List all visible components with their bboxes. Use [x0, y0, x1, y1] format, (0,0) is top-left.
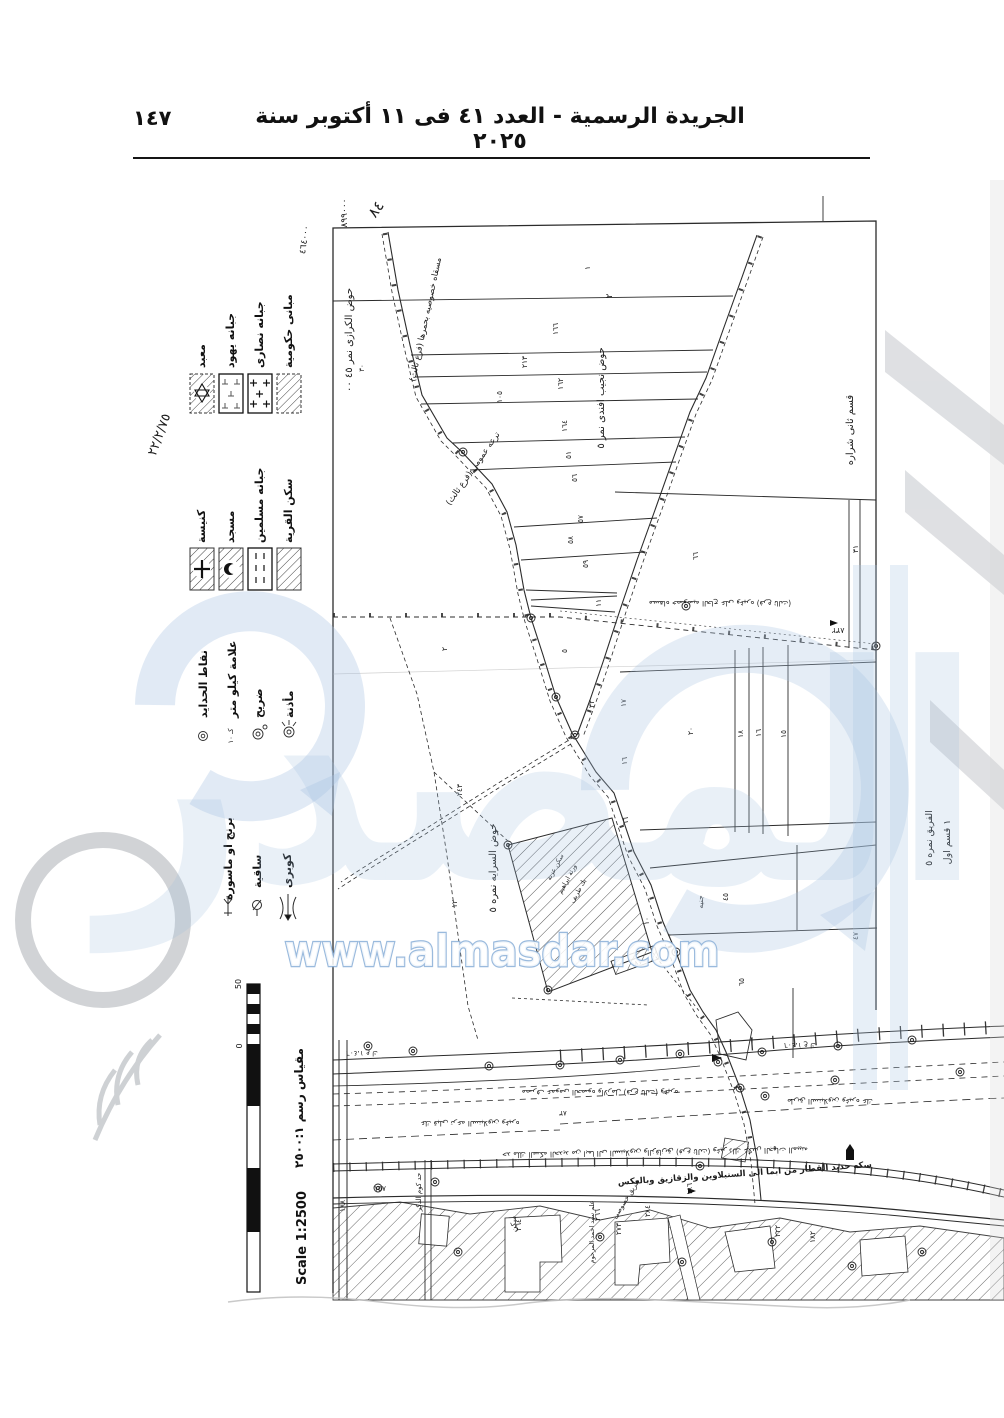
map-annotation: حد ملك السكه الحديد من ابما الى السنبلاو… [502, 1145, 808, 1159]
map-annotation: ٢٦٤ [514, 1219, 523, 1231]
map-annotation: حوض الكرازى نمر ٤٥ ٠٠ [344, 288, 355, 392]
map-annotation: مصرف عمومى الحصوه والارمل (فرع ثالث) وغي… [522, 1088, 678, 1097]
map-annotation: ٥٦ [570, 474, 579, 482]
legend-label: مسجد [224, 511, 237, 543]
legend-symbol-village-housing [277, 548, 301, 590]
legend-symbol-temple [190, 374, 214, 413]
cadastral-map: مبانى حكومية جبانه نصارى جبانه يهود معبد… [0, 0, 1004, 1418]
map-annotation: ١ [583, 266, 592, 270]
map-annotation: ٢٢/٢/٧٥ [145, 412, 174, 458]
map-annotation: ١٨٦ [685, 1183, 694, 1195]
map-annotation: ٦٥ [737, 978, 746, 986]
map-annotation: ٣٠ [358, 364, 366, 372]
map-annotation: حوض نجيب افندى نمر ٥ [596, 347, 607, 448]
map-annotation: عك قبلى ترعه السنبلاوين وغيره [421, 1119, 520, 1128]
map-annotation: ١،٤٠٦ ع ك [784, 1041, 816, 1049]
watermark-url-text: www.almasdar.com [285, 926, 720, 977]
map-annotation: ١،٤٠٦ ع ك [346, 1049, 378, 1057]
legend-label: معبد [195, 344, 208, 368]
almasdar-watermark: المصدر www.almasdar.com [23, 330, 1004, 1140]
blue-logo-watermark: المصدر [88, 565, 980, 1090]
map-annotation: ٨٩٩٠٠٠ [340, 198, 350, 227]
map-annotation: ٤٦٤٠٠٠ [298, 225, 312, 255]
map-annotation: طريق السنبلاوين وغيره عك [787, 1097, 873, 1106]
map-annotation: ٢٧٣ [614, 1223, 623, 1235]
legend-label: سكن القرية [282, 479, 295, 543]
page-bottom-blank [0, 1302, 1004, 1418]
legend-symbol-jewish-cemetery [219, 374, 243, 413]
map-annotation: ترعه عمومى (فرع ثالث) [444, 430, 503, 508]
map-annotation: ٨٤ [364, 197, 388, 221]
map-annotation: ٦٦ [691, 552, 700, 560]
map-annotation: ٢٦٦ [593, 1209, 602, 1221]
map-annotation: ٥١ [564, 451, 573, 459]
map-annotation: قسم ثانى شراره [845, 395, 856, 466]
map-annotation: ١٥٧ [374, 1184, 386, 1193]
map-annotation: ٥٧ [576, 515, 585, 523]
map-annotation: ٥٨ [566, 536, 575, 544]
scale-tick-min: 0 [235, 1043, 244, 1048]
legend-label: جبانه مسلمين [253, 468, 266, 543]
map-annotation: ٢ [605, 293, 615, 298]
map-annotation: سكه حديد القطار من ابما الى السنبلاوين و… [618, 1160, 873, 1188]
scale-bar: 50 0 مقياس رسم ٢٥٠٠:١ Scale 1:2500 [234, 979, 310, 1292]
legend-symbol-muslim-cemetery [248, 548, 272, 590]
house-row [560, 1027, 1000, 1056]
map-annotation: ٢٢٢ [773, 1225, 782, 1237]
legend-symbol-mosque [219, 548, 243, 590]
legend-label: جبانه يهود [224, 313, 237, 368]
map-annotation: ١٦٢ [556, 378, 565, 390]
map-annotation: حد كوم الدكر [415, 1173, 423, 1213]
map-annotation: ١٨٢ [808, 1231, 817, 1243]
map-annotation: ٥٩ [581, 560, 590, 568]
legend-symbol-christian-cemetery [248, 374, 272, 413]
legend-label: كنيسة [195, 509, 208, 543]
scale-title-arabic: مقياس رسم ٢٥٠٠:١ [292, 1048, 306, 1168]
legend-symbol-government-buildings [277, 374, 301, 413]
parcel-fan-lines [333, 296, 733, 612]
map-annotation: ٨٣ [559, 1109, 567, 1117]
map-annotation: مسقاه خصوصيه بحمرها (فرع ثالث) [408, 257, 444, 383]
map-annotation: ١٨٨ [338, 1200, 347, 1212]
scan-edge-shadow [990, 180, 1004, 1300]
legend-symbol-church [190, 548, 214, 590]
map-annotation: ٢١٣ [520, 356, 529, 368]
map-annotation: ٢٨٤ [643, 1205, 652, 1217]
map-annotation: ٣١ [851, 545, 860, 553]
scale-tick-max: 50 [234, 979, 243, 989]
legend-label: جبانه نصارى [253, 301, 266, 368]
map-annotation: ١٦٦ [551, 323, 560, 335]
laurel-watermark [95, 1035, 160, 1140]
gazette-page: الجريدة الرسمية - العدد ٤١ فى ١١ أكتوبر … [0, 0, 1004, 1418]
scale-title-english: Scale 1:2500 [295, 1191, 310, 1285]
map-annotation: ١٦٤ [560, 420, 569, 432]
legend-label: مبانى حكومية [282, 294, 295, 368]
map-annotation: ١٠٥ [495, 391, 504, 403]
